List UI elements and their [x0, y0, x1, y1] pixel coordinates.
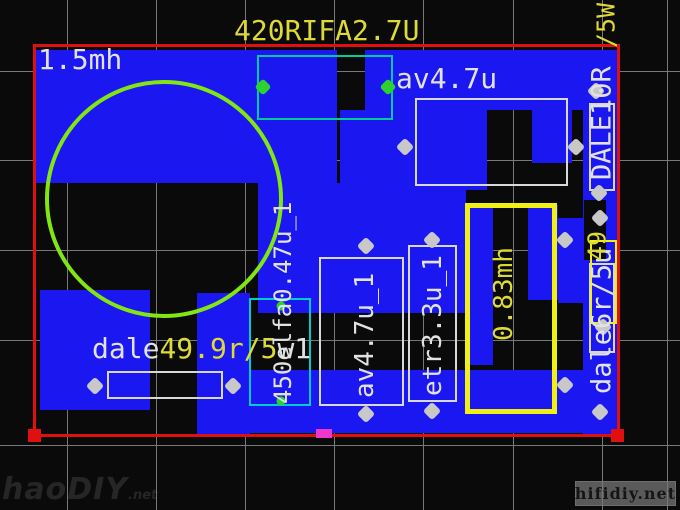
- footprint-outline-teal[interactable]: [257, 55, 393, 120]
- vertical-label-450elfa[interactable]: 450elfa0.47u_1: [269, 192, 297, 414]
- grid-line: [667, 0, 668, 510]
- corner-marker[interactable]: [28, 429, 41, 442]
- inductor-value-label[interactable]: 1.5mh: [38, 46, 122, 74]
- footprint-outline[interactable]: [415, 98, 568, 186]
- pcb-canvas[interactable]: haoDIY.net hifidiy.net: [0, 0, 680, 510]
- footprint-outline[interactable]: [107, 371, 223, 399]
- vertical-label-av47u1[interactable]: av4.7u_1: [351, 262, 379, 408]
- board-title-label[interactable]: 420RIFA2.7U: [234, 17, 419, 45]
- origin-marker[interactable]: [316, 429, 332, 438]
- corner-marker[interactable]: [611, 429, 624, 442]
- capacitor-value-label[interactable]: av4.7u: [396, 65, 497, 93]
- resistor-label-value: 49.9r/5: [159, 332, 277, 365]
- vertical-label-5w[interactable]: /5W: [592, 2, 620, 49]
- watermark-hifidiy: hifidiy.net: [575, 481, 676, 506]
- vertical-label-dale10r[interactable]: DALE10R: [588, 50, 616, 196]
- resistor-label-prefix: dale: [92, 332, 159, 365]
- vertical-label-etr33u1[interactable]: etr3.3u_1: [419, 247, 447, 405]
- watermark-haodiy: haoDIY.net: [2, 472, 157, 507]
- vertical-label-083mh[interactable]: 0.83mh: [490, 240, 518, 348]
- grid-line: [0, 445, 680, 446]
- vertical-label-49[interactable]: 49: [583, 228, 611, 264]
